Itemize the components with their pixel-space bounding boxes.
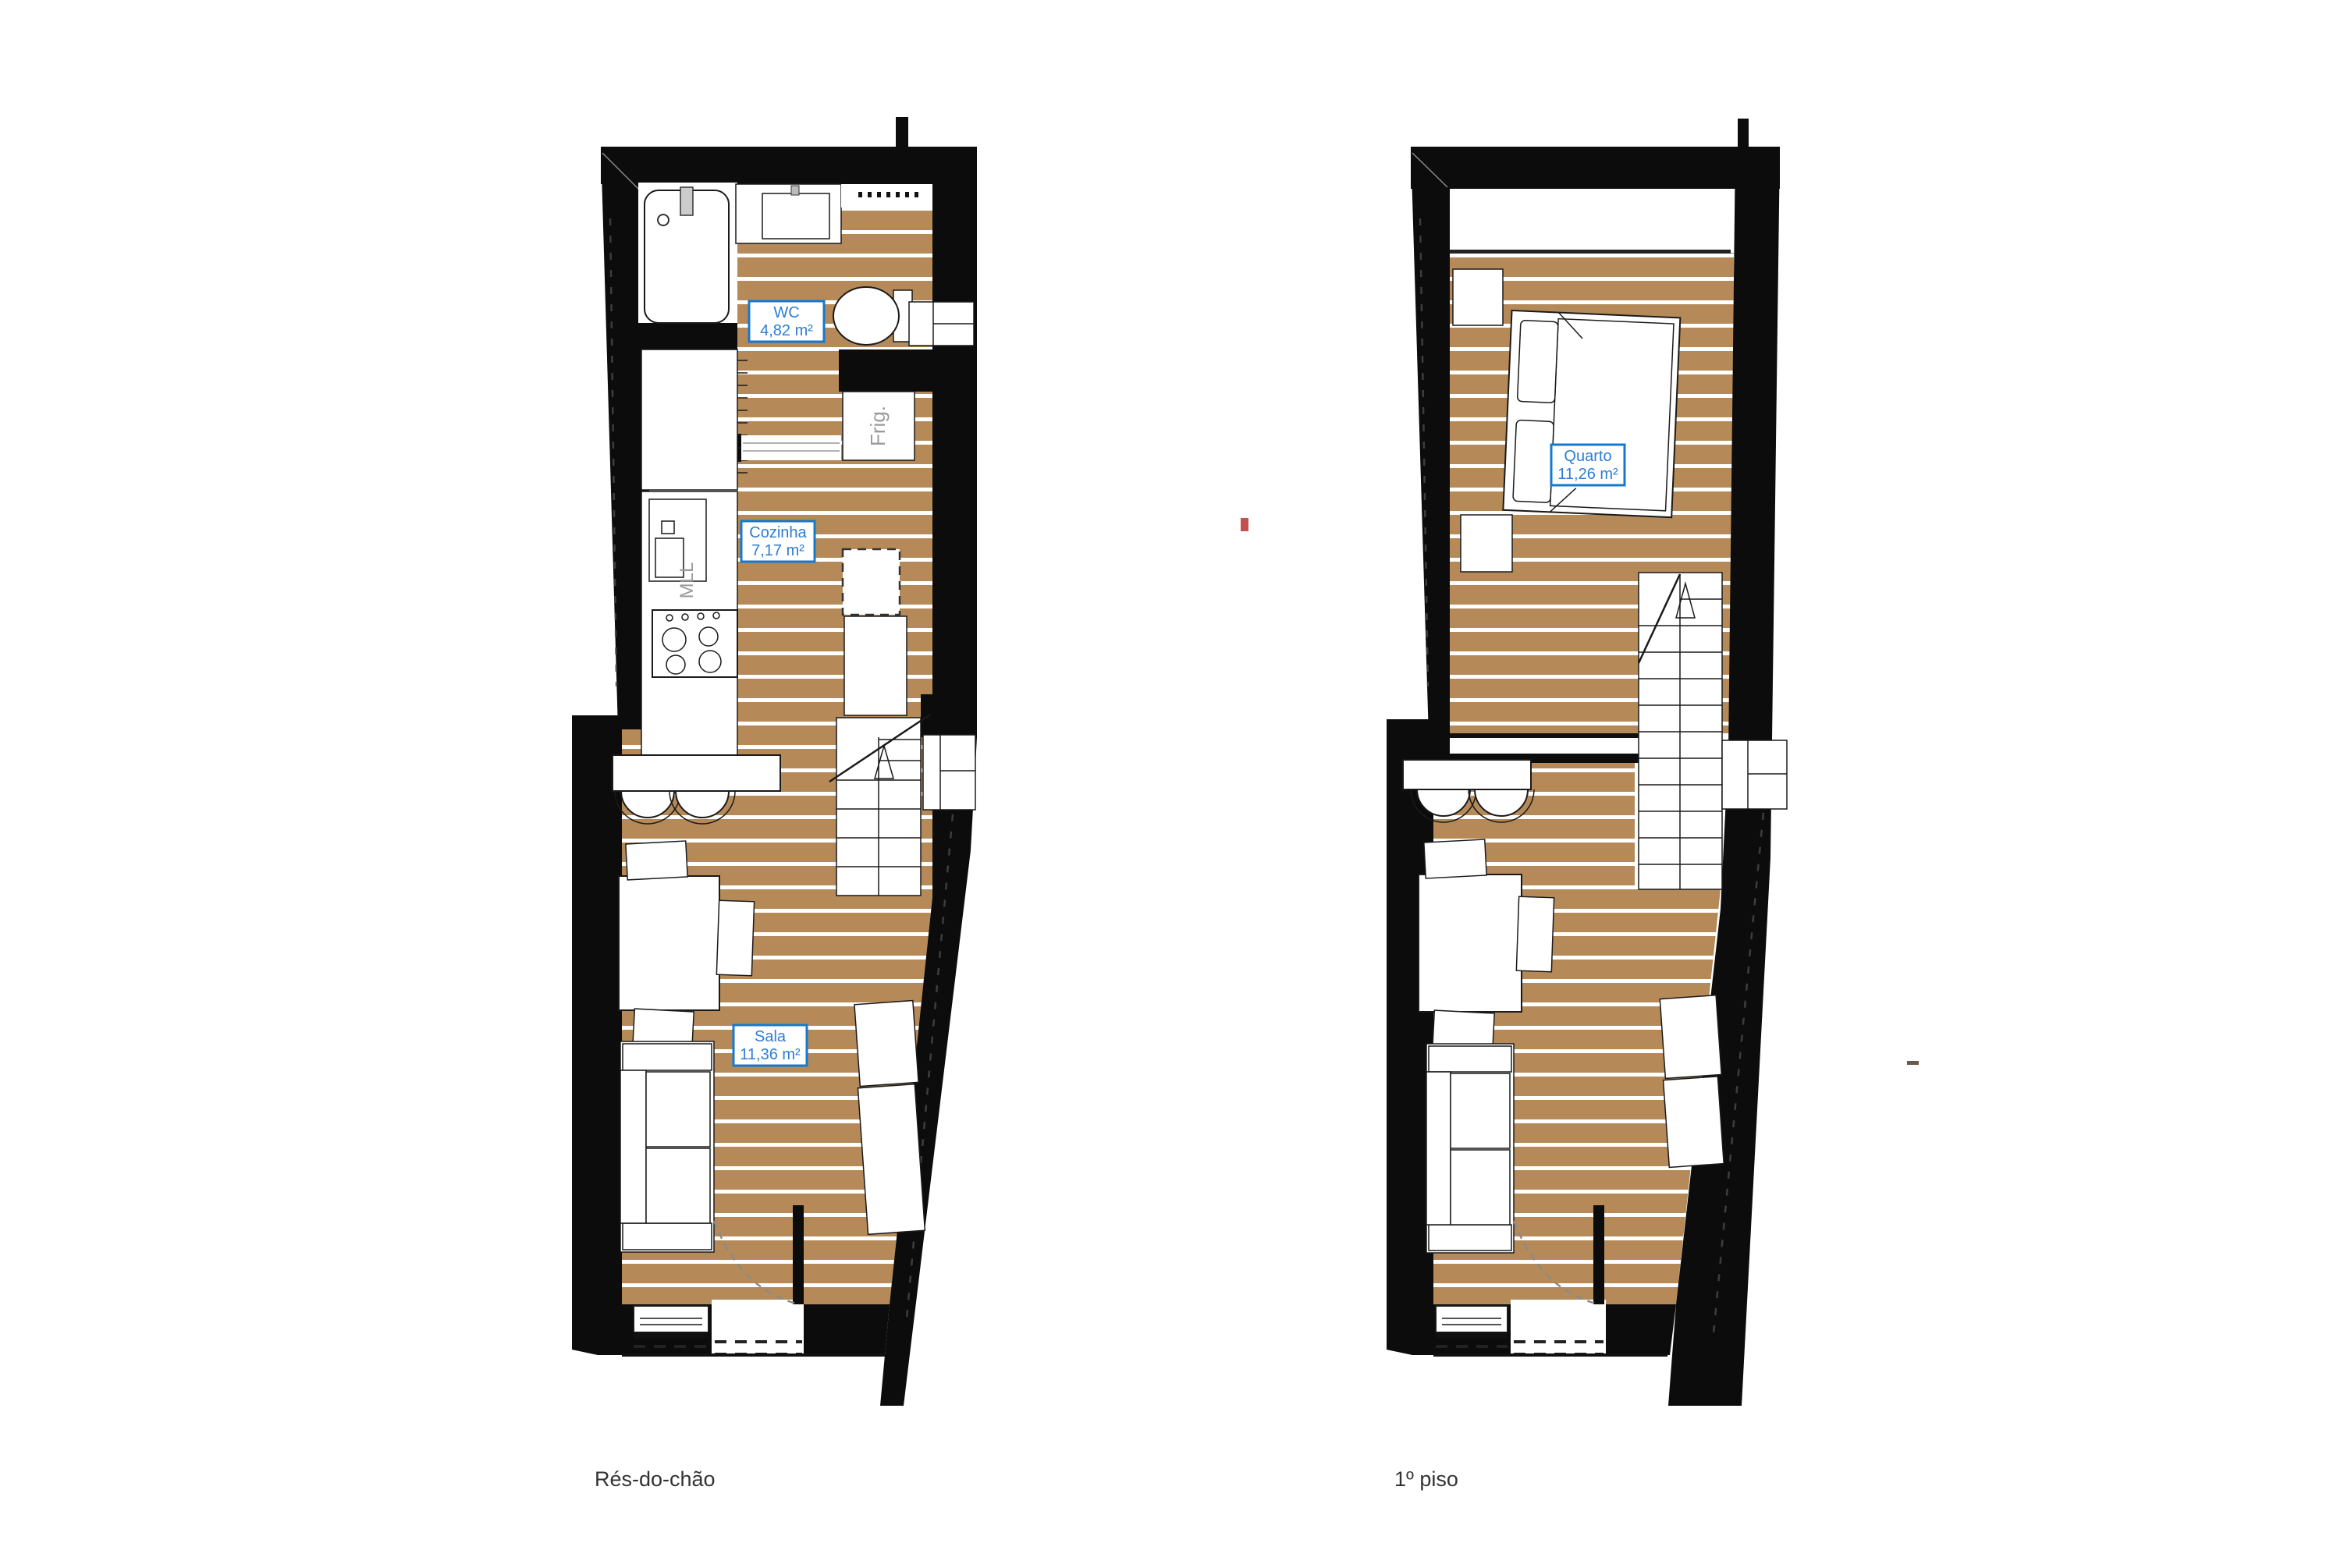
room-label-wc: WC 4,82 m²	[749, 301, 824, 342]
svg-text:11,36 m²: 11,36 m²	[740, 1046, 801, 1063]
wall-top	[601, 147, 977, 184]
svg-text:Cozinha: Cozinha	[749, 524, 807, 541]
chair	[716, 900, 754, 976]
room-label-sala: Sala 11,36 m²	[733, 1025, 807, 1066]
wall-jut	[1738, 119, 1749, 150]
door-leaf	[1593, 1205, 1604, 1304]
door-opening	[1511, 1300, 1606, 1356]
stairs-window	[1722, 740, 1787, 809]
floor-plan-ground: MLL Frig.	[572, 117, 977, 1406]
room-label-quarto: Quarto 11,26 m²	[1551, 445, 1625, 485]
stove	[652, 610, 737, 677]
wardrobe	[1657, 995, 1728, 1168]
stairs-window	[923, 735, 975, 810]
washing-machine-label: MLL	[677, 562, 698, 599]
wall-band-below-tub	[638, 323, 737, 349]
door-opening	[712, 1300, 804, 1356]
closet-band-edge	[1450, 250, 1731, 254]
wall-left-upper	[1411, 147, 1450, 763]
svg-text:4,82 m²: 4,82 m²	[760, 322, 813, 339]
svg-text:Sala: Sala	[755, 1028, 787, 1045]
closet-band	[1450, 189, 1731, 251]
kitchen-cabinet	[844, 616, 907, 715]
sliding-door	[741, 435, 841, 460]
vanity-sink	[736, 184, 841, 243]
bathroom-cabinet	[641, 349, 748, 490]
toilet	[833, 287, 912, 345]
bathtub	[645, 187, 729, 323]
caption-ground-floor: Rés-do-chão	[595, 1467, 716, 1491]
caption-first-floor: 1º piso	[1394, 1467, 1458, 1491]
sofa	[1426, 1044, 1514, 1253]
dining-table	[1419, 874, 1522, 1012]
wall-quarto-divider	[1433, 733, 1639, 763]
room-label-cozinha: Cozinha 7,17 m²	[741, 521, 815, 562]
stairs	[829, 715, 930, 896]
chair	[1516, 896, 1554, 972]
bottom-line	[622, 1353, 885, 1357]
wall-stub	[839, 349, 932, 392]
chair	[626, 841, 687, 880]
nightstand	[1461, 515, 1512, 572]
nightstand	[1453, 269, 1503, 325]
wall-top	[1411, 147, 1780, 189]
wall-right-upper	[932, 147, 977, 737]
wall-left-lower	[572, 715, 622, 1355]
floor-plan-drawing: MLL Frig.	[0, 0, 2344, 1568]
wall-left-lower	[1387, 719, 1433, 1355]
chair	[1424, 839, 1486, 878]
red-mark	[1241, 518, 1248, 531]
bottom-line	[1433, 1353, 1667, 1357]
dining-table	[619, 876, 719, 1010]
dishwasher-dashed	[843, 549, 900, 615]
floor-plan-first: Quarto 11,26 m²	[1387, 119, 1787, 1406]
pillow	[1517, 321, 1557, 403]
door-leaf	[793, 1205, 804, 1304]
stairs	[1639, 573, 1722, 889]
svg-text:Quarto: Quarto	[1564, 448, 1611, 465]
svg-text:WC: WC	[773, 304, 799, 321]
pillow	[1513, 420, 1554, 502]
small-dash-mark	[1907, 1061, 1919, 1065]
floor-plan-sheet: MLL Frig.	[0, 0, 2344, 1568]
window	[909, 302, 974, 346]
wall-jut	[896, 117, 908, 150]
svg-text:11,26 m²: 11,26 m²	[1557, 466, 1618, 483]
sofa	[620, 1041, 714, 1252]
fridge: Frig.	[843, 392, 915, 460]
svg-text:Frig.: Frig.	[866, 406, 890, 446]
svg-text:7,17 m²: 7,17 m²	[751, 542, 804, 559]
